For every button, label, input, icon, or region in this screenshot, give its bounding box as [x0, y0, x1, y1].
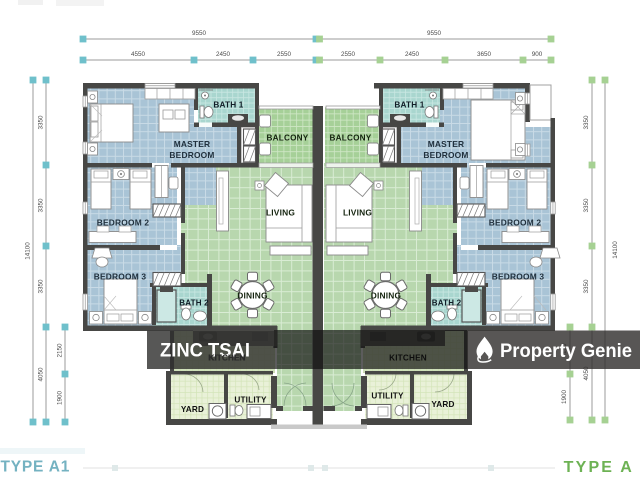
svg-text:3650: 3650 — [477, 51, 492, 58]
svg-text:2550: 2550 — [341, 51, 356, 58]
svg-text:UTILITY: UTILITY — [371, 392, 404, 401]
svg-text:DINING: DINING — [237, 291, 268, 301]
svg-text:1900: 1900 — [561, 390, 568, 405]
svg-text:BEDROOM 2: BEDROOM 2 — [97, 218, 150, 228]
svg-text:YARD: YARD — [431, 400, 454, 409]
svg-text:BATH 2: BATH 2 — [179, 299, 209, 308]
svg-text:3350: 3350 — [38, 279, 45, 294]
svg-text:BATH 2: BATH 2 — [432, 299, 462, 308]
svg-text:3350: 3350 — [38, 198, 45, 213]
svg-text:3350: 3350 — [583, 279, 590, 294]
svg-text:9550: 9550 — [192, 30, 207, 37]
svg-text:YARD: YARD — [181, 405, 204, 414]
svg-text:KITCHEN: KITCHEN — [209, 354, 245, 363]
svg-text:TYPE A: TYPE A — [564, 459, 634, 476]
svg-text:BALCONY: BALCONY — [267, 134, 309, 143]
svg-text:DINING: DINING — [371, 291, 402, 301]
svg-text:BATH 1: BATH 1 — [213, 101, 243, 110]
svg-text:2450: 2450 — [405, 51, 420, 58]
svg-text:UTILITY: UTILITY — [234, 396, 267, 405]
svg-text:BATH 1: BATH 1 — [394, 101, 424, 110]
svg-text:BEDROOM: BEDROOM — [423, 150, 468, 160]
svg-text:1900: 1900 — [57, 391, 64, 406]
svg-text:900: 900 — [532, 51, 543, 58]
svg-text:9550: 9550 — [427, 30, 442, 37]
svg-text:4550: 4550 — [131, 51, 146, 58]
svg-text:BALCONY: BALCONY — [330, 134, 372, 143]
svg-text:MASTER: MASTER — [174, 139, 211, 149]
svg-text:BEDROOM 2: BEDROOM 2 — [489, 218, 542, 228]
svg-text:BEDROOM: BEDROOM — [169, 150, 214, 160]
svg-text:14100: 14100 — [612, 241, 619, 259]
svg-text:3350: 3350 — [583, 115, 590, 130]
svg-text:14100: 14100 — [25, 242, 32, 260]
svg-text:LIVING: LIVING — [343, 208, 372, 218]
svg-text:Property Genie: Property Genie — [500, 341, 632, 362]
svg-text:BEDROOM 3: BEDROOM 3 — [492, 272, 545, 282]
svg-text:MASTER: MASTER — [428, 139, 465, 149]
svg-text:3350: 3350 — [38, 115, 45, 130]
svg-text:2150: 2150 — [57, 343, 64, 358]
svg-text:2450: 2450 — [216, 51, 231, 58]
svg-text:3350: 3350 — [583, 198, 590, 213]
svg-text:4050: 4050 — [38, 367, 45, 382]
svg-text:BEDROOM 3: BEDROOM 3 — [94, 272, 147, 282]
svg-text:LIVING: LIVING — [266, 208, 295, 218]
svg-text:2550: 2550 — [277, 51, 292, 58]
svg-text:TYPE A1: TYPE A1 — [1, 459, 71, 476]
